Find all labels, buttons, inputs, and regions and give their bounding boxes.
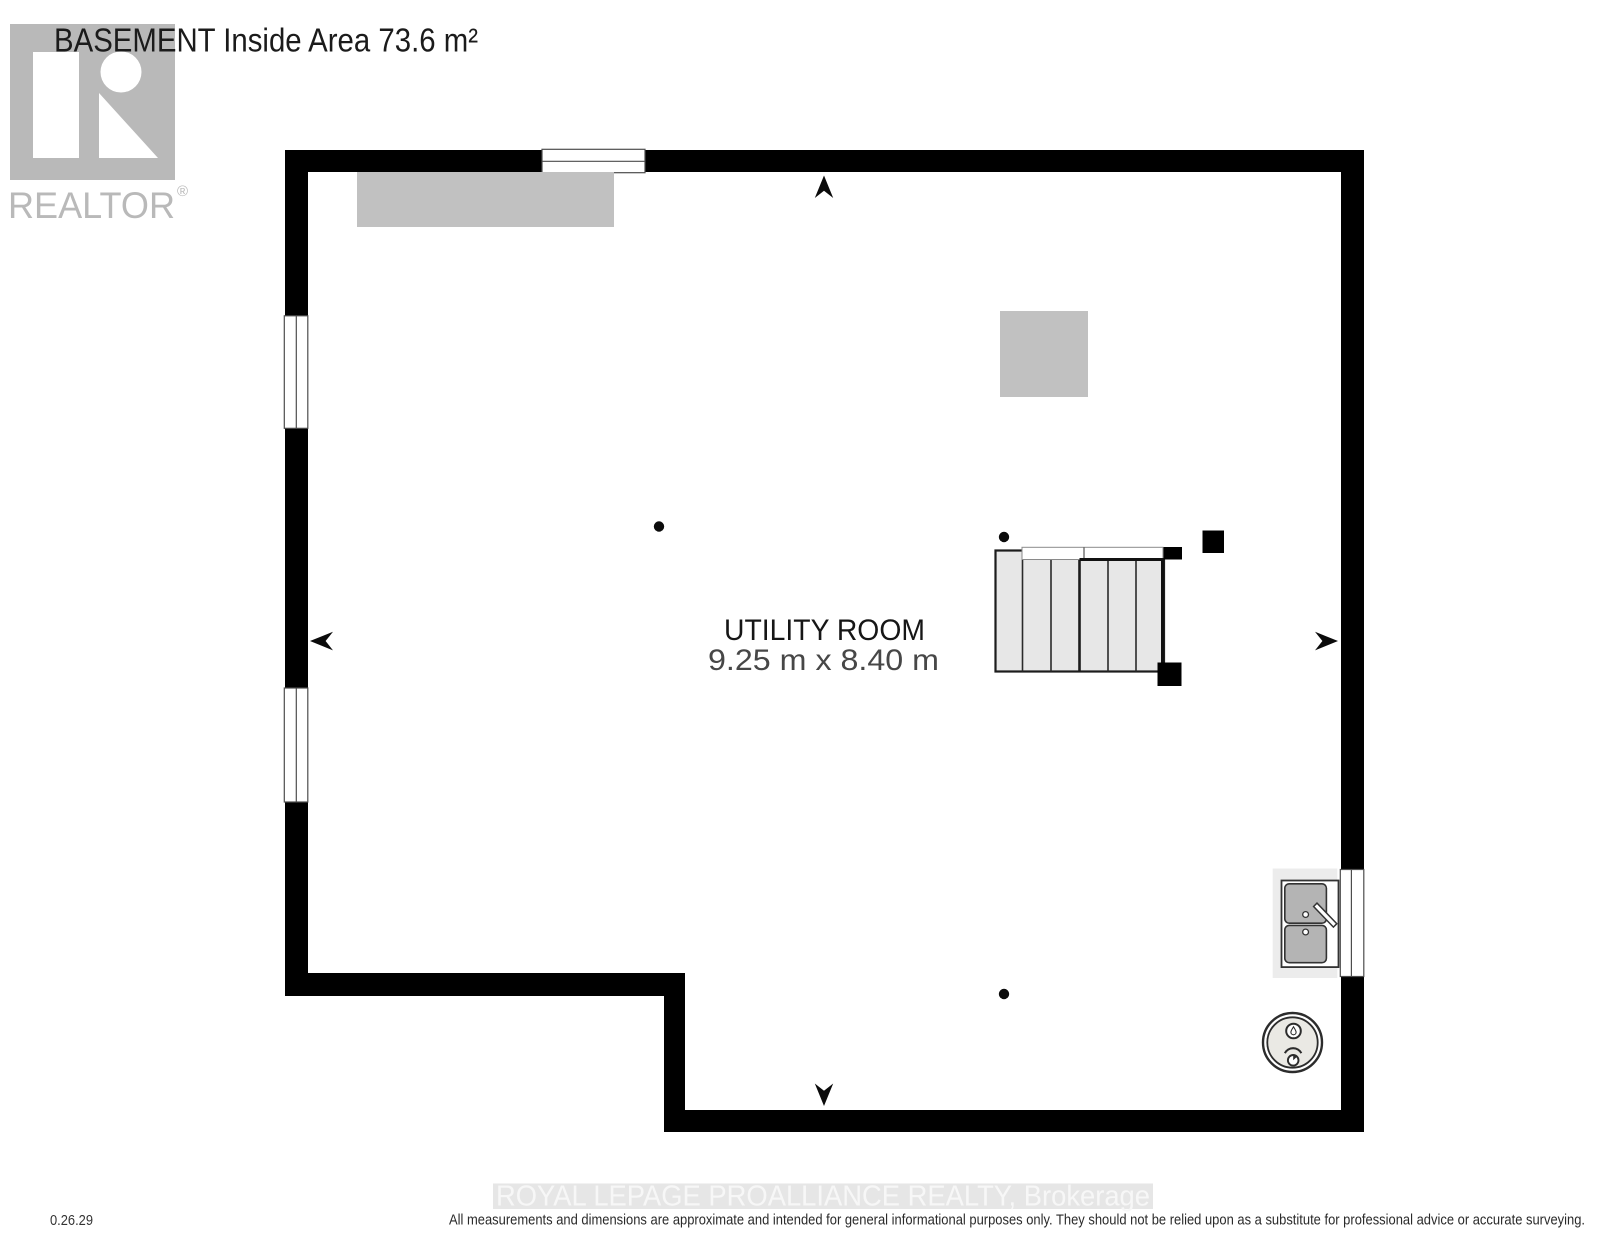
- svg-text:ROYAL LEPAGE PROALLIANCE REALT: ROYAL LEPAGE PROALLIANCE REALTY, Brokera…: [496, 1181, 1150, 1213]
- svg-text:UTILITY ROOM: UTILITY ROOM: [724, 614, 925, 647]
- svg-text:9.25 m x 8.40 m: 9.25 m x 8.40 m: [708, 644, 939, 677]
- svg-text:BASEMENT Inside Area 73.6 m²: BASEMENT Inside Area 73.6 m²: [54, 22, 478, 59]
- svg-text:0.26.29: 0.26.29: [50, 1213, 93, 1229]
- svg-text:REALTOR: REALTOR: [8, 185, 175, 226]
- svg-text:®: ®: [177, 183, 188, 200]
- svg-text:All measurements and dimension: All measurements and dimensions are appr…: [449, 1213, 1585, 1229]
